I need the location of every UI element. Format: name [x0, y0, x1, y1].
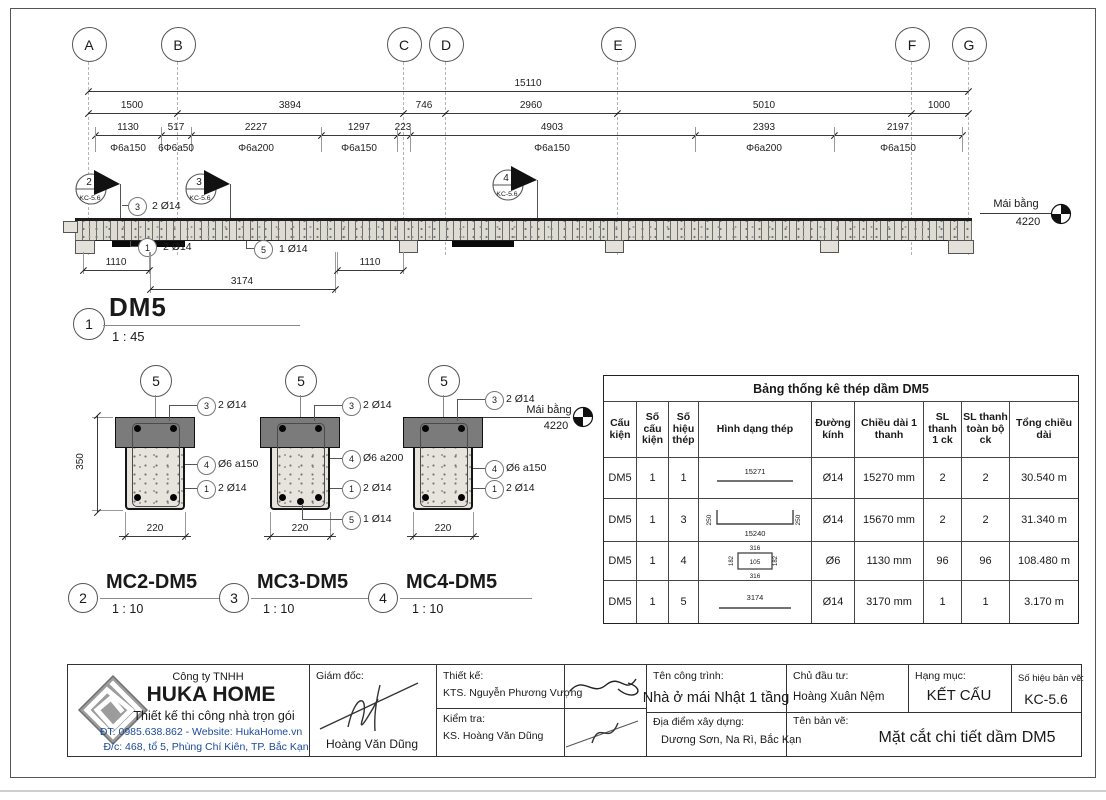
witness-line — [397, 127, 398, 152]
bar-shape-line: 15271 — [705, 459, 805, 497]
grid-bubble-b: B — [161, 27, 196, 62]
shape-dim: 250 — [795, 514, 802, 525]
witness-line — [834, 127, 835, 152]
rebar-callout-label: Ø6 a200 — [363, 452, 403, 464]
table-row: DM5 1 4 316 182 182 105 316 Ø6 1130 mm 9… — [604, 541, 1078, 580]
shape-dim: 182 — [729, 555, 735, 566]
bar-mark: 5 — [152, 373, 160, 389]
leader-line — [314, 405, 315, 421]
cell-member: DM5 — [604, 499, 636, 541]
rebar-callout-circle: 4 — [197, 456, 216, 475]
beam-support — [820, 240, 839, 253]
cell-length: 1130 mm — [854, 542, 923, 580]
table-row: DM5 1 1 15271 Ø14 15270 mm 2 2 30.540 m — [604, 457, 1078, 498]
cell-length: 15670 mm — [854, 499, 923, 541]
dim-label: 2197 — [887, 122, 909, 133]
bar-shape-u: 250 250 15240 — [703, 500, 807, 540]
location-value: Dương Sơn, Na Rì, Bắc Kạn — [661, 734, 801, 746]
cut-number: 3 — [196, 177, 202, 188]
table-header-row: Cấu kiện Số cấu kiện Số hiệu thép Hình d… — [604, 401, 1078, 457]
section-title: MC2-DM5 — [106, 571, 197, 594]
dim-label: 4903 — [541, 122, 563, 133]
bar-shape-line: 3174 — [705, 582, 805, 622]
callout-number: 5 — [349, 515, 354, 525]
project-name: Nhà ở mái Nhật 1 tầng — [643, 690, 790, 706]
section-scale: 1 : 10 — [263, 602, 294, 616]
rebar-callout-label: Ø6 a150 — [506, 462, 546, 474]
leader-line — [457, 399, 458, 421]
cut-number: 2 — [86, 177, 92, 188]
cell-mark: 3 — [668, 499, 698, 541]
bar-mark-circle: 5 — [428, 365, 460, 397]
shape-dim: 316 — [750, 545, 761, 552]
cell-mark: 5 — [668, 581, 698, 623]
stirrup-zone-label: Φ6a150 — [110, 143, 146, 154]
cut-line — [537, 180, 538, 218]
cut-line — [230, 184, 231, 218]
col-header: Cấu kiện — [604, 402, 636, 457]
dim-label: 1500 — [121, 100, 143, 111]
witness-line — [410, 127, 411, 152]
grid-label: F — [908, 37, 917, 53]
dim-line — [83, 270, 149, 271]
section-cut-flag-4: 4 KC-5.6 — [491, 164, 543, 206]
level-symbol — [1050, 203, 1072, 225]
beam-support — [605, 240, 624, 253]
leader-line — [169, 405, 170, 421]
checker-signature — [562, 711, 642, 753]
rebar-dot — [422, 425, 429, 432]
drawing-name-label: Tên bản vẽ: — [793, 715, 848, 727]
dim-label: 1000 — [928, 100, 950, 111]
grid-bubble-c: C — [387, 27, 422, 62]
rebar-dot — [170, 425, 177, 432]
cell-diameter: Ø14 — [811, 581, 854, 623]
title-underline — [100, 598, 232, 599]
level-symbol — [572, 406, 594, 428]
divider — [1011, 665, 1012, 712]
leader-line — [457, 399, 485, 400]
check-label: Kiểm tra: — [443, 713, 485, 725]
beam-left-end — [63, 221, 78, 233]
cell-member: DM5 — [604, 458, 636, 498]
shape-dim: 105 — [750, 559, 761, 566]
shape-dim: 3174 — [747, 593, 764, 602]
bar-mark-circle: 5 — [140, 365, 172, 397]
view-scale: 1 : 45 — [112, 329, 145, 344]
rebar-callout-circle: 3 — [197, 397, 216, 416]
leader-line — [314, 405, 342, 406]
bar-shape-stirrup: 316 182 182 105 316 — [703, 542, 807, 580]
col-header: Số cấu kiện — [636, 402, 668, 457]
owner-name: Hoàng Xuân Nệm — [793, 691, 884, 703]
shape-dim: 15240 — [745, 529, 766, 538]
rebar-dot — [134, 425, 141, 432]
leader-line — [185, 488, 197, 489]
cut-line — [120, 184, 121, 218]
rebar-dot — [422, 494, 429, 501]
cell-diameter: Ø6 — [811, 542, 854, 580]
col-header: Hình dạng thép — [698, 402, 811, 457]
rebar-callout-label: 2 Ø14 — [363, 399, 392, 411]
col-header: Tổng chiều dài — [1009, 402, 1078, 457]
designer-name: KTS. Nguyễn Phương Vượng — [443, 687, 582, 699]
dim-label: 5010 — [753, 100, 775, 111]
dim-label: 2960 — [520, 100, 542, 111]
dim-line — [407, 536, 479, 537]
stirrup-zone-label: Φ6a150 — [880, 143, 916, 154]
leader-line — [155, 395, 156, 418]
company-address: Đ/c: 468, tổ 5, Phùng Chí Kiên, TP. Bắc … — [103, 741, 308, 753]
rebar-callout-label: 2 Ø14 — [218, 482, 247, 494]
view-number-circle: 2 — [68, 583, 98, 613]
rebar-dot — [458, 494, 465, 501]
view-number-circle: 4 — [368, 583, 398, 613]
dim-label: 1297 — [348, 122, 370, 133]
view-name: DM5 — [109, 292, 167, 323]
callout-number: 1 — [492, 484, 497, 494]
rebar-dot — [170, 494, 177, 501]
rebar-callout-circle: 3 — [342, 397, 361, 416]
rebar-callout-circle: 5 — [254, 240, 273, 259]
beam-right-end — [948, 240, 974, 254]
leader-line — [443, 395, 444, 418]
callout-number: 1 — [349, 484, 354, 494]
divider — [436, 665, 437, 756]
rebar-callout-circle: 1 — [485, 480, 504, 499]
stirrup-zone-label: 6Φ6a50 — [158, 143, 194, 154]
designer-signature — [566, 671, 644, 707]
sheet-number: KC-5.6 — [1024, 691, 1068, 707]
cell-shape: 316 182 182 105 316 — [698, 542, 811, 580]
leader-line — [302, 505, 303, 519]
rebar-callout-circle: 4 — [485, 460, 504, 479]
cell-shape: 15271 — [698, 458, 811, 498]
owner-label: Chủ đầu tư: — [793, 670, 848, 682]
cut-ref: KC-5.6 — [189, 195, 210, 202]
leader-line — [130, 246, 138, 247]
view-number: 1 — [85, 316, 93, 332]
divider — [908, 665, 909, 712]
leader-line — [330, 458, 342, 459]
beam-support — [399, 240, 418, 253]
cell-member: DM5 — [604, 581, 636, 623]
section-scale: 1 : 10 — [412, 602, 443, 616]
title-block: Công ty TNHH HUKA HOME Thiết kế thi công… — [67, 664, 1082, 757]
stirrup-zone-label: Φ6a150 — [341, 143, 377, 154]
rebar-callout-circle: 4 — [342, 450, 361, 469]
dim-line — [88, 113, 968, 114]
sheet-number-label: Số hiệu bản vẽ: — [1018, 673, 1084, 684]
rebar-callout-label: 2 Ø14 — [506, 482, 535, 494]
rebar-callout-label: 2 Ø14 — [218, 399, 247, 411]
callout-number: 1 — [204, 484, 209, 494]
leader-line — [473, 468, 485, 469]
rebar-callout-circle: 1 — [138, 238, 157, 257]
rebar-callout-circle: 1 — [342, 480, 361, 499]
rebar-dot — [134, 494, 141, 501]
dim-line — [97, 415, 98, 512]
dim-label: 3174 — [231, 276, 253, 287]
section-scale: 1 : 10 — [112, 602, 143, 616]
dim-label-220: 220 — [147, 523, 164, 534]
col-header: SL thanh 1 ck — [923, 402, 961, 457]
bar-mark-circle: 5 — [285, 365, 317, 397]
section-title: MC4-DM5 — [406, 571, 497, 594]
category-value: KẾT CẤU — [927, 687, 992, 704]
rebar-callout-label: 1 Ø14 — [363, 513, 392, 525]
rebar-dot — [279, 425, 286, 432]
leader-line — [473, 488, 485, 489]
table-row: DM5 1 5 3174 Ø14 3170 mm 1 1 3.170 m — [604, 580, 1078, 623]
cell-member: DM5 — [604, 542, 636, 580]
section-title: MC3-DM5 — [257, 571, 348, 594]
grid-label: D — [441, 37, 451, 53]
view-number: 3 — [230, 590, 238, 606]
col-header: Chiều dài 1 thanh — [854, 402, 923, 457]
dim-label-350: 350 — [75, 453, 86, 470]
cut-number: 4 — [503, 173, 509, 184]
dim-label: 2227 — [245, 122, 267, 133]
level-line — [483, 417, 570, 418]
cell-qty-all: 96 — [961, 542, 1009, 580]
level-name: Mái bằng — [526, 404, 571, 416]
cell-mark: 1 — [668, 458, 698, 498]
cut-arrow — [511, 166, 537, 191]
col-header: Đường kính — [811, 402, 854, 457]
grid-bubble-a: A — [72, 27, 107, 62]
section-cut-flag-2: 2 KC-5.6 — [74, 168, 126, 210]
grid-bubble-f: F — [895, 27, 930, 62]
rebar-callout-circle: 3 — [128, 197, 147, 216]
company-slogan: Thiết kế thi công nhà trọn gói — [133, 709, 294, 723]
cell-qty1: 1 — [923, 581, 961, 623]
director-name: Hoàng Văn Dũng — [326, 737, 418, 751]
leader-line — [302, 519, 342, 520]
rebar-callout-circle: 1 — [197, 480, 216, 499]
cut-ref: KC-5.6 — [79, 195, 100, 202]
drawing-sheet: A B C D E F G 15110 1500 3894 746 2960 5… — [0, 0, 1106, 800]
grid-label: E — [613, 37, 622, 53]
table-title: Bảng thống kê thép dầm DM5 — [604, 376, 1078, 401]
beam-support — [75, 240, 95, 254]
table-title-text: Bảng thống kê thép dầm DM5 — [753, 382, 929, 396]
cell-count: 1 — [636, 542, 668, 580]
checker-name: KS. Hoàng Văn Dũng — [443, 730, 543, 742]
divider — [309, 665, 310, 756]
col-header: SL thanh toàn bộ ck — [961, 402, 1009, 457]
witness-line — [695, 127, 696, 152]
callout-number: 3 — [492, 395, 497, 405]
dim-line — [119, 536, 191, 537]
cell-qty1: 96 — [923, 542, 961, 580]
cell-length: 15270 mm — [854, 458, 923, 498]
cell-mark: 4 — [668, 542, 698, 580]
dim-line — [88, 91, 968, 92]
view-number-circle: 3 — [219, 583, 249, 613]
stirrup-zone-label: Φ6a200 — [238, 143, 274, 154]
rebar-dot — [458, 425, 465, 432]
shape-dim: 15271 — [745, 467, 766, 476]
beam-body — [75, 221, 972, 241]
shape-dim: 316 — [750, 573, 761, 580]
divider — [646, 665, 647, 756]
callout-number: 1 — [145, 243, 150, 253]
cell-total: 31.340 m — [1009, 499, 1078, 541]
leader-line — [185, 464, 197, 465]
category-label: Hạng mục: — [915, 670, 966, 682]
bar-mark: 5 — [297, 373, 305, 389]
dim-label: 1110 — [360, 257, 381, 268]
level-value: 4220 — [1016, 216, 1040, 228]
section-cut-flag-3: 3 KC-5.6 — [184, 168, 236, 210]
callout-number: 3 — [135, 202, 140, 212]
divider — [436, 708, 646, 709]
company-type: Công ty TNHH — [172, 671, 243, 683]
witness-line — [95, 127, 96, 152]
cut-ref: KC-5.6 — [496, 191, 517, 198]
paper-edge — [0, 790, 1106, 792]
cell-total: 3.170 m — [1009, 581, 1078, 623]
cell-shape: 250 250 15240 — [698, 499, 811, 541]
leader-line — [330, 488, 342, 489]
cell-diameter: Ø14 — [811, 458, 854, 498]
rebar-callout-label: 2 Ø14 — [163, 241, 192, 253]
cell-qty-all: 2 — [961, 458, 1009, 498]
drawing-name: Mặt cắt chi tiết dầm DM5 — [879, 729, 1056, 747]
leader-line — [246, 248, 254, 249]
cell-qty1: 2 — [923, 458, 961, 498]
cut-arrow — [204, 170, 230, 195]
witness-line — [962, 127, 963, 152]
cell-total: 108.480 m — [1009, 542, 1078, 580]
cell-qty-all: 2 — [961, 499, 1009, 541]
cell-diameter: Ø14 — [811, 499, 854, 541]
col-header: Số hiệu thép — [668, 402, 698, 457]
level-value: 4220 — [544, 420, 568, 432]
dim-line — [337, 270, 403, 271]
cell-shape: 3174 — [698, 581, 811, 623]
view-number: 4 — [379, 590, 387, 606]
cell-qty1: 2 — [923, 499, 961, 541]
cell-total: 30.540 m — [1009, 458, 1078, 498]
table-row: DM5 1 3 250 250 15240 Ø14 15670 mm 2 2 3… — [604, 498, 1078, 541]
rebar-indicator-bar — [452, 241, 514, 247]
dim-label: 3894 — [279, 100, 301, 111]
cell-count: 1 — [636, 499, 668, 541]
grid-label: G — [964, 37, 975, 53]
dim-label: 2393 — [753, 122, 775, 133]
callout-number: 4 — [492, 464, 497, 474]
callout-number: 4 — [349, 454, 354, 464]
divider — [646, 712, 1081, 713]
stirrup-zone-label: Φ6a200 — [746, 143, 782, 154]
grid-bubble-d: D — [429, 27, 464, 62]
dim-line — [150, 289, 335, 290]
dim-label-220: 220 — [292, 523, 309, 534]
rebar-callout-circle: 5 — [342, 511, 361, 530]
callout-number: 3 — [204, 401, 209, 411]
title-underline — [251, 598, 383, 599]
rebar-dot — [315, 425, 322, 432]
shape-dim: 250 — [706, 514, 713, 525]
grid-label: A — [84, 37, 93, 53]
rebar-callout-circle: 3 — [485, 391, 504, 410]
stirrup-zone-label: Φ6a150 — [534, 143, 570, 154]
cut-arrow — [94, 170, 120, 195]
company-contact: ĐT: 0985.638.862 - Website: HukaHome.vn — [100, 726, 302, 738]
leader-line — [169, 405, 197, 406]
callout-number: 3 — [349, 401, 354, 411]
view-number-circle: 1 — [73, 308, 105, 340]
dim-label: 517 — [168, 122, 185, 133]
rebar-dot — [279, 494, 286, 501]
cell-qty-all: 1 — [961, 581, 1009, 623]
callout-number: 4 — [204, 460, 209, 470]
project-label: Tên công trình: — [653, 670, 724, 682]
location-label: Địa điểm xây dựng: — [653, 716, 744, 728]
dim-label: 746 — [416, 100, 433, 111]
cell-count: 1 — [636, 458, 668, 498]
dim-label: 1110 — [106, 257, 127, 268]
steel-schedule-table: Bảng thống kê thép dầm DM5 Cấu kiện Số c… — [603, 375, 1079, 624]
callout-number: 5 — [261, 245, 266, 255]
rebar-callout-label: 2 Ø14 — [363, 482, 392, 494]
rebar-dot — [315, 494, 322, 501]
title-underline — [400, 598, 532, 599]
dim-total: 15110 — [514, 78, 541, 89]
rebar-callout-label: Ø6 a150 — [218, 458, 258, 470]
director-signature — [318, 677, 426, 735]
rebar-callout-label: 1 Ø14 — [279, 243, 308, 255]
view-number: 2 — [79, 590, 87, 606]
title-underline — [103, 325, 300, 326]
level-line — [980, 213, 1052, 214]
cell-count: 1 — [636, 581, 668, 623]
dim-line — [264, 536, 336, 537]
leader-line — [300, 395, 301, 418]
grid-bubble-e: E — [601, 27, 636, 62]
shape-dim: 182 — [773, 555, 779, 566]
cell-length: 3170 mm — [854, 581, 923, 623]
witness-line — [321, 127, 322, 152]
grid-label: C — [399, 37, 409, 53]
design-label: Thiết kế: — [443, 670, 483, 682]
bar-mark: 5 — [440, 373, 448, 389]
rebar-dot — [297, 498, 304, 505]
dim-label: 1130 — [117, 122, 139, 133]
level-name: Mái bằng — [993, 198, 1038, 210]
rebar-callout-label: 2 Ø14 — [152, 200, 181, 212]
grid-label: B — [173, 37, 182, 53]
dim-label-220: 220 — [435, 523, 452, 534]
grid-bubble-g: G — [952, 27, 987, 62]
company-name: HUKA HOME — [147, 683, 276, 707]
